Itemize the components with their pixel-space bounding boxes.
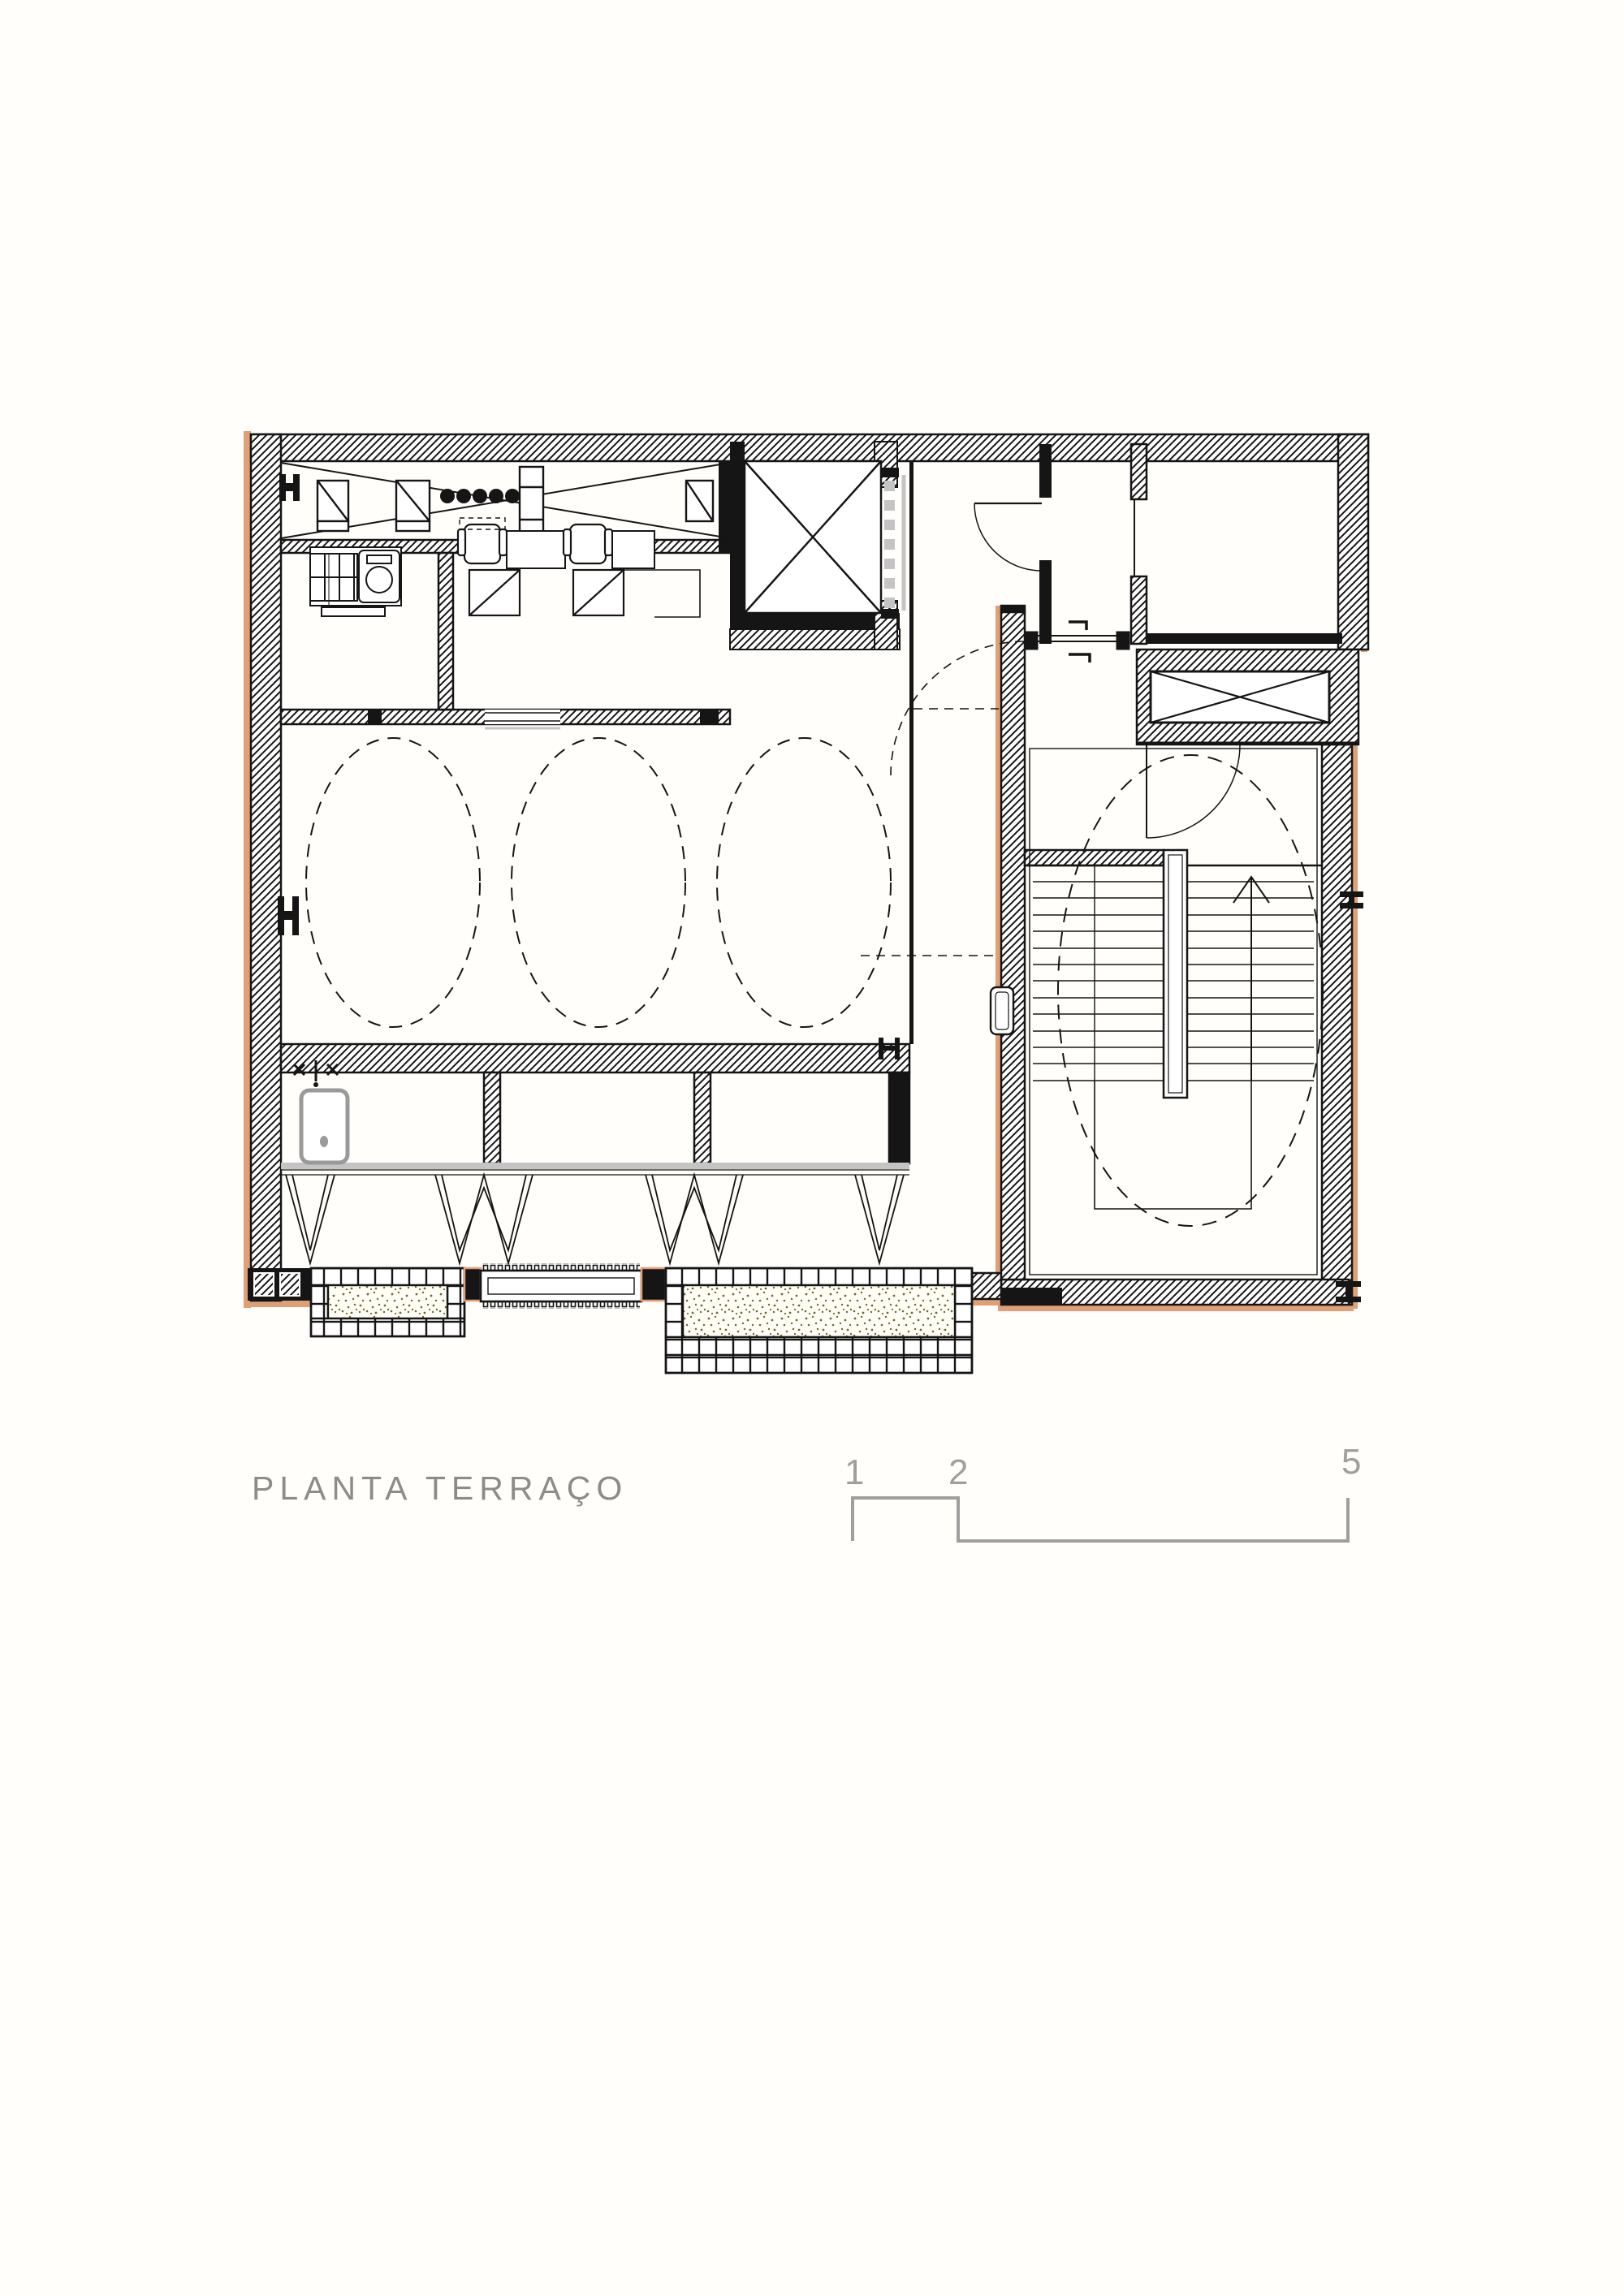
stair-spine-wall [1164,850,1187,1098]
elevator-shaft [745,461,904,619]
counter-back-wall [281,1044,909,1072]
workstation-room [458,518,700,617]
vent-dots [440,489,520,503]
counter-end-wall [889,1072,909,1163]
bottom-left-corner-block [248,1268,310,1301]
scale-label-1: 1 [844,1452,864,1492]
floor-plan-drawing: PLANTA TERRAÇO 1 2 5 [0,0,1624,2296]
elevator-door-track [884,481,895,608]
workstation-chair [564,524,612,563]
floor-plan-canvas: PLANTA TERRAÇO 1 2 5 [0,0,1624,2296]
bottom-wall-stub [972,1273,1001,1299]
counter-partition-1 [484,1072,500,1163]
floor-grille [481,1263,641,1309]
room-wall-stub-bottom [1131,576,1147,644]
stair-direction-arrow [1233,877,1269,1081]
gravel-bed [683,1285,955,1337]
scale-bar: 1 2 5 [844,1442,1361,1541]
equipment-room-a [310,547,401,616]
louver-zigzag-screens [281,1175,909,1263]
facade-post [464,1268,481,1301]
room-partition [438,553,453,710]
counter-partition-2 [694,1072,710,1163]
scale-label-5: 5 [1341,1442,1361,1482]
louver-v [855,1175,904,1263]
scale-bar-line [853,1498,1348,1541]
stair-hall-door-swing [1147,744,1240,838]
right-wall-upper [1338,434,1368,650]
topright-room-bottom-wall [1147,633,1342,644]
wall-handle-box [991,987,1013,1034]
stair-top-wall [1025,850,1164,865]
ceiling-dashed-circles [306,738,891,1027]
workstation-chair [458,524,507,563]
lobby-door-swing [974,503,1042,571]
right-wall-stair [1322,744,1352,1305]
counter-zone [281,1060,909,1170]
equipment-unit [310,547,401,616]
counter-front-edge [281,1163,909,1169]
scale-label-2: 2 [948,1452,968,1492]
louver-w [435,1175,533,1263]
rooms-door-opening [485,710,560,728]
facade-post [641,1268,666,1301]
louver-w [646,1175,743,1263]
planter-2 [666,1268,972,1373]
steel-column [278,896,299,935]
drawing-title: PLANTA TERRAÇO [252,1470,628,1507]
gravel-bed [328,1285,447,1318]
central-wall [1001,611,1025,1280]
stair-dashed-ellipse [1058,755,1323,1226]
room-wall-stub-top [1131,444,1147,499]
stair-landing-outline [1095,1081,1251,1209]
left-wall [251,434,281,1301]
desk [507,531,565,568]
lobby-wall-upper [1039,444,1052,498]
desk [612,531,654,568]
corridor-thin-wall [909,461,914,1044]
top-wall [251,434,1368,461]
planter-1 [311,1268,464,1336]
stair-hall [991,749,1323,1275]
steel-column [279,474,300,501]
louver-v [286,1175,335,1263]
cabinet-x [469,570,624,615]
central-wall-cap [1001,606,1025,612]
sink [301,1090,348,1163]
lobby-wall-lower [1039,560,1052,644]
